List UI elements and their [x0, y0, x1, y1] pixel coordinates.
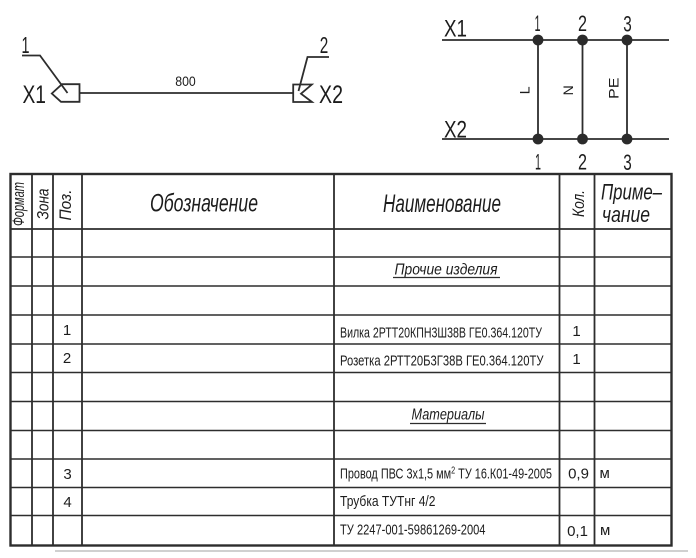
svg-text:1: 1	[572, 351, 580, 368]
svg-text:4: 4	[63, 494, 71, 511]
svg-text:Вилка 2РТТ20КПН3Ш38В ГЕ0.364.1: Вилка 2РТТ20КПН3Ш38В ГЕ0.364.120ТУ	[340, 325, 542, 342]
svg-text:Приме–: Приме–	[601, 180, 663, 205]
svg-text:800: 800	[175, 73, 196, 89]
svg-text:3: 3	[623, 12, 632, 37]
svg-text:Поз.: Поз.	[56, 190, 75, 221]
svg-text:2: 2	[320, 32, 329, 58]
svg-text:3: 3	[623, 150, 632, 175]
svg-text:ТУ 2247-001-59861269-2004: ТУ 2247-001-59861269-2004	[340, 522, 486, 539]
svg-text:Наименование: Наименование	[383, 190, 501, 218]
svg-text:Прочие изделия: Прочие изделия	[395, 262, 498, 279]
svg-text:X1: X1	[444, 16, 467, 43]
svg-text:Кол.: Кол.	[569, 190, 588, 217]
svg-text:0,9: 0,9	[568, 466, 589, 483]
svg-text:1: 1	[535, 150, 541, 175]
svg-text:2: 2	[578, 150, 587, 175]
svg-text:м: м	[600, 522, 610, 539]
svg-text:2: 2	[63, 350, 71, 367]
svg-text:1: 1	[572, 323, 580, 340]
svg-text:м: м	[600, 465, 610, 482]
svg-text:X1: X1	[23, 81, 47, 109]
svg-text:Материалы: Материалы	[412, 407, 485, 424]
svg-text:1: 1	[22, 32, 30, 58]
svg-text:1: 1	[535, 11, 541, 36]
svg-text:1: 1	[63, 322, 71, 339]
svg-text:Формат: Формат	[9, 182, 28, 226]
svg-text:Провод ПВС 3х1,5 мм2 ТУ 16.К01: Провод ПВС 3х1,5 мм2 ТУ 16.К01-49-2005	[340, 466, 552, 483]
svg-text:Трубка ТУТнг 4/2: Трубка ТУТнг 4/2	[340, 493, 436, 510]
svg-text:3: 3	[63, 466, 71, 483]
svg-text:L: L	[517, 86, 533, 94]
svg-text:X2: X2	[319, 81, 343, 109]
svg-text:Розетка 2РТТ20Б3Г38В ГЕ0.364.1: Розетка 2РТТ20Б3Г38В ГЕ0.364.120ТУ	[340, 353, 544, 370]
svg-text:N: N	[560, 85, 576, 95]
svg-text:Зона: Зона	[34, 189, 53, 220]
svg-text:чание: чание	[602, 202, 650, 227]
svg-text:2: 2	[578, 11, 587, 36]
svg-text:0,1: 0,1	[567, 523, 588, 540]
svg-text:PE: PE	[606, 78, 622, 100]
svg-text:Обозначение: Обозначение	[150, 190, 258, 218]
